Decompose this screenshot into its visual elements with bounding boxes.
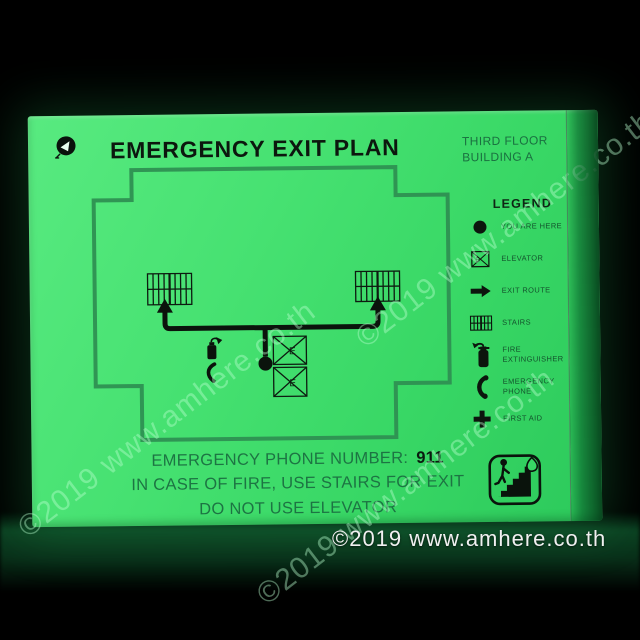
legend-item-you-are-here: YOU ARE HERE [467,210,567,243]
legend-item-fire-extinguisher: FIRE EXTINGUISHER [468,338,568,371]
legend-title: LEGEND [493,196,567,211]
you-are-here-dot-icon [467,219,493,235]
svg-text:E: E [475,258,479,264]
north-marker-icon [52,134,80,162]
legend-item-label: STAIRS [502,317,564,327]
building-location-label: THIRD FLOOR BUILDING A [462,132,548,165]
use-stairs-pictogram [487,452,544,507]
legend-item-stairs: STAIRS [468,306,568,339]
instruction-line: DO NOT USE ELEVATOR [78,493,518,522]
stairs-icon [468,314,494,332]
phone-number-value: 911 [416,449,444,467]
you-are-here-dot [258,356,272,370]
legend-item-elevator: E ELEVATOR [467,242,567,275]
floor-plan: E E [78,156,471,460]
fire-extinguisher-plan-icon [207,337,222,359]
legend-item-label: ELEVATOR [501,253,563,263]
emergency-phone-plan-icon [208,364,214,381]
elevator-letter: E [289,346,296,357]
legend-item-label: FIRST AID [503,413,565,423]
legend-panel: LEGEND YOU ARE HERE E ELEVATOR [467,196,570,435]
exit-route-path [157,296,387,372]
emergency-phone-icon [469,374,495,400]
legend-item-label: EXIT ROUTE [502,285,564,295]
first-aid-cross-icon [469,409,495,429]
stairs-left-icon [147,273,191,304]
sign-fold-edge [566,110,603,521]
legend-item-label: FIRE EXTINGUISHER [502,344,564,364]
watermark-text: ©2019 www.amhere.co.th [332,526,606,552]
exit-route-arrow-icon [468,283,494,299]
legend-item-exit-route: EXIT ROUTE [468,274,568,307]
fire-extinguisher-icon [468,341,494,369]
elevator-letter: E [289,378,296,389]
emergency-instructions: EMERGENCY PHONE NUMBER:911 IN CASE OF FI… [77,445,518,523]
legend-item-label: EMERGENCY PHONE [503,376,565,396]
photo-of-sign: ©2019 www.amhere.co.th ©2019 www.amhere.… [0,0,640,640]
person-icon [495,459,509,484]
emergency-exit-plan-sign: ©2019 www.amhere.co.th ©2019 www.amhere.… [28,110,603,527]
instruction-line: IN CASE OF FIRE, USE STAIRS FOR EXIT [78,469,518,498]
phone-number-label: EMERGENCY PHONE NUMBER: [151,449,408,470]
flame-icon [527,457,538,471]
legend-item-first-aid: FIRST AID [469,402,569,435]
legend-item-label: YOU ARE HERE [501,221,563,231]
building-outline [93,166,450,440]
legend-item-emergency-phone: EMERGENCY PHONE [469,370,569,403]
elevator-icon: E [467,250,493,268]
